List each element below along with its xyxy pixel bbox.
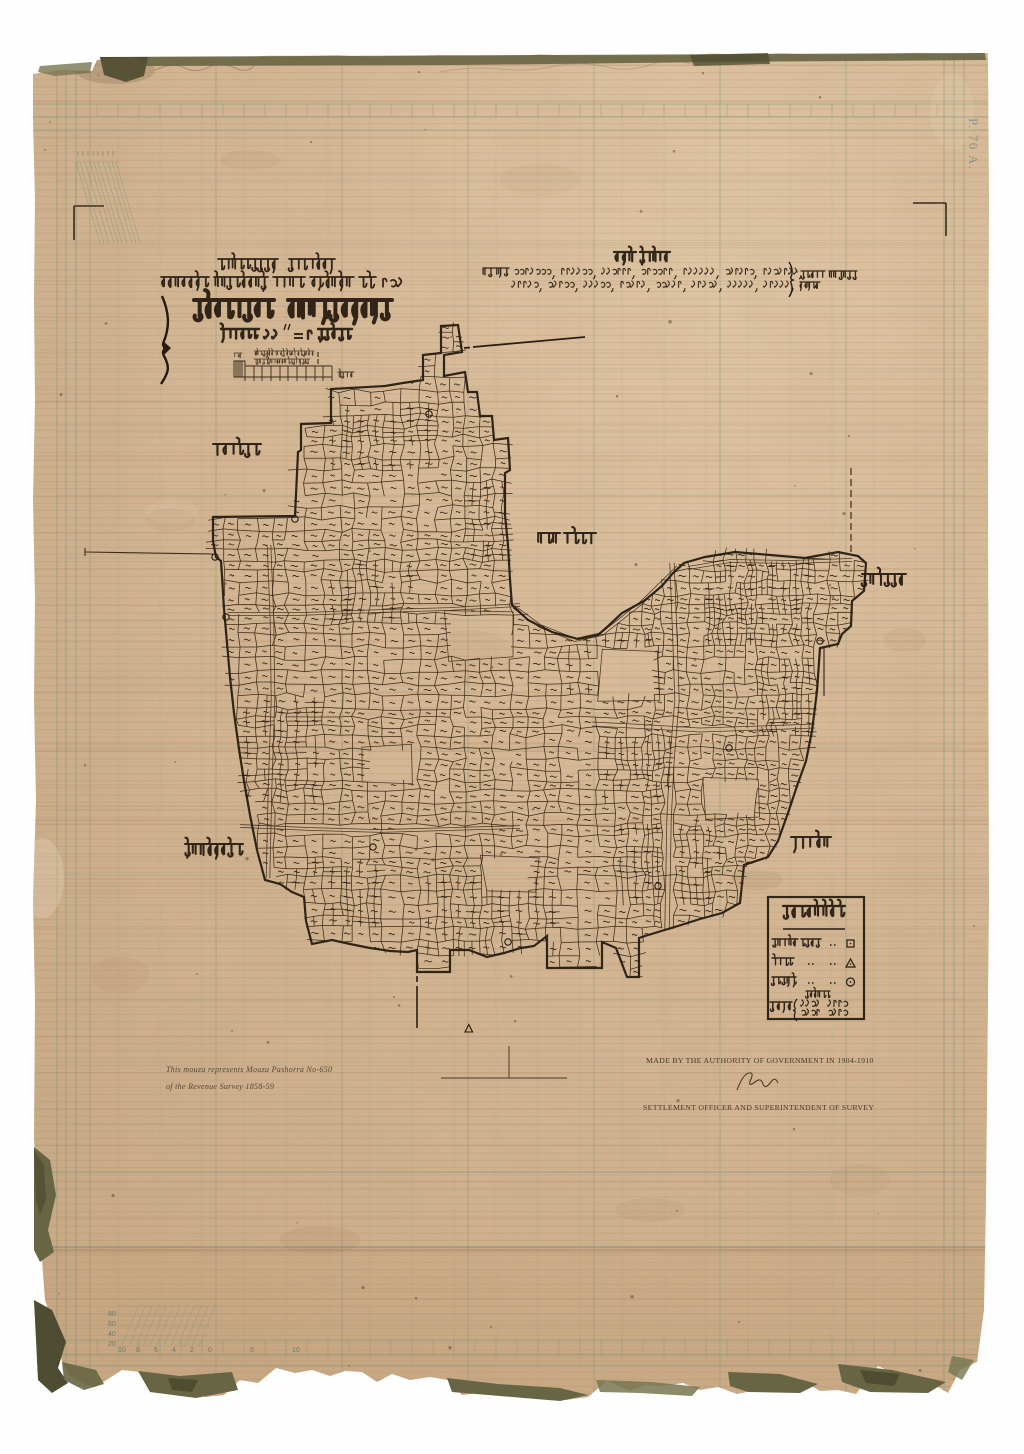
svg-text:0: 0	[208, 1347, 212, 1354]
svg-text:10: 10	[118, 1347, 126, 1354]
svg-text:8: 8	[136, 1347, 140, 1354]
svg-text:P. 70 A.: P. 70 A.	[966, 118, 981, 170]
svg-text:2: 2	[190, 1347, 194, 1354]
svg-text:6: 6	[154, 1347, 158, 1354]
svg-text:MADE BY THE AUTHORITY OF GOV: MADE BY THE AUTHORITY OF GOVERNMENT IN 1…	[646, 1056, 874, 1065]
svg-text:SETTLEMENT OFFICER AND SUPERIN: SETTLEMENT OFFICER AND SUPERINTENDENT OF…	[643, 1103, 874, 1112]
svg-text:4: 4	[172, 1347, 176, 1354]
svg-text:60: 60	[108, 1321, 116, 1328]
svg-text:5: 5	[250, 1347, 254, 1354]
svg-text:10: 10	[292, 1347, 300, 1354]
svg-text:40: 40	[108, 1331, 116, 1338]
svg-text:of the Revenue Survey 1858-59: of the Revenue Survey 1858-59	[166, 1082, 274, 1091]
svg-text:20: 20	[108, 1341, 116, 1348]
svg-text:80: 80	[108, 1311, 116, 1318]
svg-text:This mouza represents Mouza P: This mouza represents Mouza Pashorra No-…	[166, 1065, 332, 1074]
